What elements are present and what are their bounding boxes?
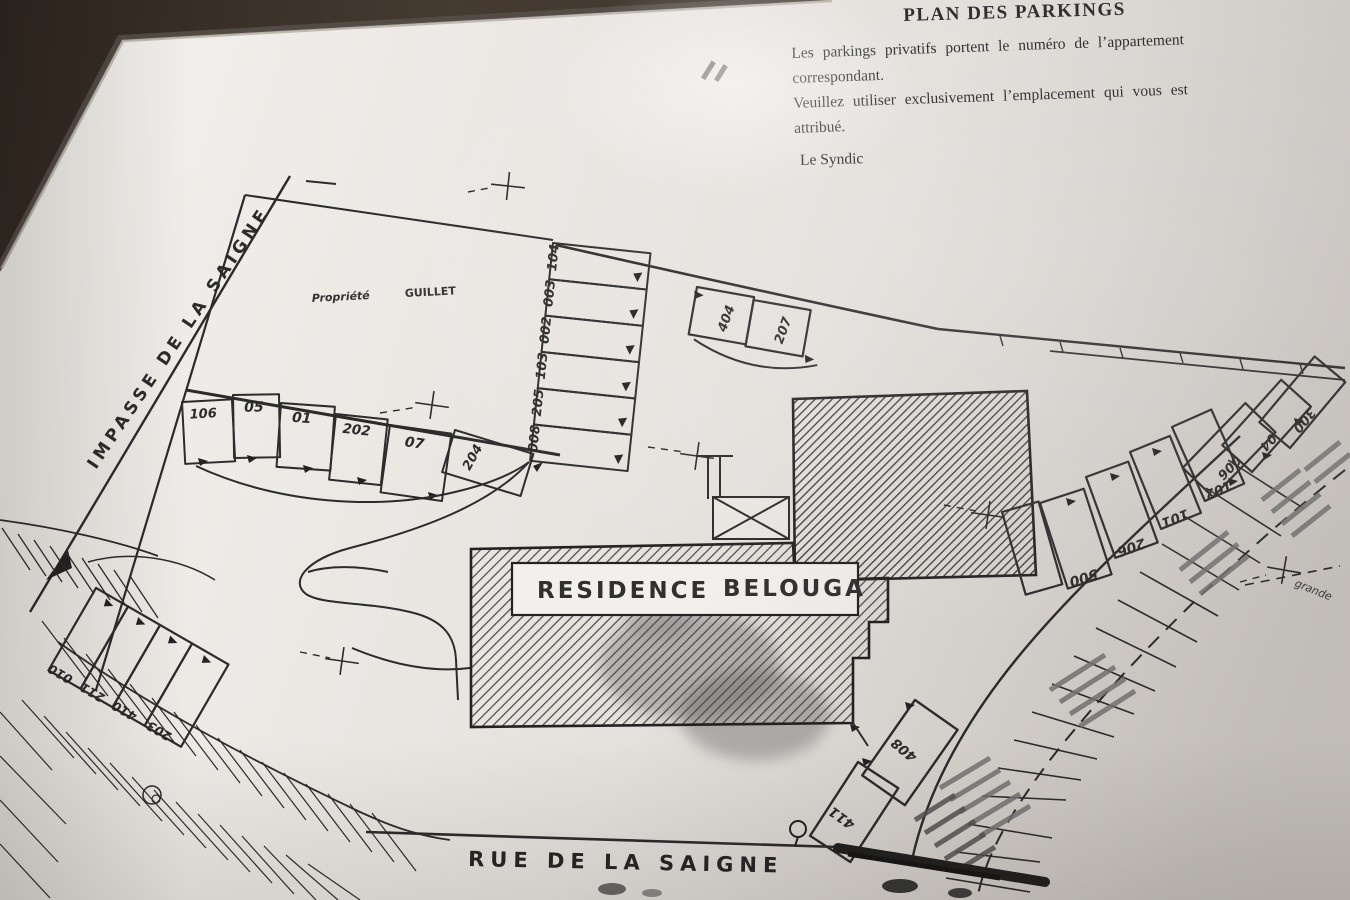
site-plan-svg: IMPASSE DE LA SAIGNE Propriété GUILLET 1… <box>0 0 1350 900</box>
impasse-street-label: IMPASSE DE LA SAIGNE <box>84 203 275 473</box>
rue-street-label: RUE DE LA SAIGNE <box>468 847 784 878</box>
parking-spot-number: 003 <box>541 279 559 308</box>
parking-spot-number: 205 <box>530 389 548 418</box>
parking-spot-number: 05 <box>244 399 264 415</box>
building-name-word1: RESIDENCE <box>537 578 709 604</box>
parking-spot-number: 07 <box>404 434 426 453</box>
parking-spot-number: 404 <box>715 303 739 335</box>
property-owner-label: GUILLET <box>404 284 456 300</box>
residence-belouga-building: RESIDENCE BELOUGA <box>471 391 1036 727</box>
parking-spot-number: 104 <box>545 243 563 272</box>
grande-annotation: grande <box>1293 577 1334 604</box>
paper-edge <box>0 0 832 270</box>
parking-spot-number: 01 <box>291 410 312 427</box>
embankment-hatching <box>0 520 450 900</box>
parking-spot-number: 207 <box>772 315 796 347</box>
spot-corner-arrows <box>102 598 213 666</box>
building-name-word2: BELOUGA <box>723 576 866 602</box>
parking-left-lower: 010 211 410 203 <box>45 587 229 751</box>
parking-spot-number: 408 <box>888 734 921 765</box>
ramp-symbol <box>696 455 789 539</box>
parking-spot-number: 010 <box>45 661 75 687</box>
photo-artifact-marks <box>701 60 728 82</box>
road-symbol-circle <box>790 821 806 837</box>
parking-left-row: 106 05 01 202 07 204 <box>182 394 543 501</box>
parking-spot-number: 202 <box>342 421 372 440</box>
parking-spot-number: 008 <box>526 424 544 453</box>
parking-spot-number: 411 <box>826 803 859 833</box>
parking-strip: 104 003 002 103 205 008 <box>525 242 650 471</box>
property-label: Propriété <box>311 289 370 305</box>
parking-spot-number: 204 <box>460 442 486 473</box>
parking-spot-number: 103 <box>534 352 552 381</box>
parking-spot-number: 211 <box>77 680 107 706</box>
photo-of-parking-plan: PLAN DES PARKINGS Les parkings privatifs… <box>0 0 1350 900</box>
parking-spot-number: 106 <box>189 406 217 422</box>
parking-spot-number: 300 <box>1289 405 1318 435</box>
parking-right-row: 500 206 101 102 <box>1002 410 1304 595</box>
bank-slope-lines <box>0 700 360 900</box>
parking-spot-number: 002 <box>537 316 555 345</box>
